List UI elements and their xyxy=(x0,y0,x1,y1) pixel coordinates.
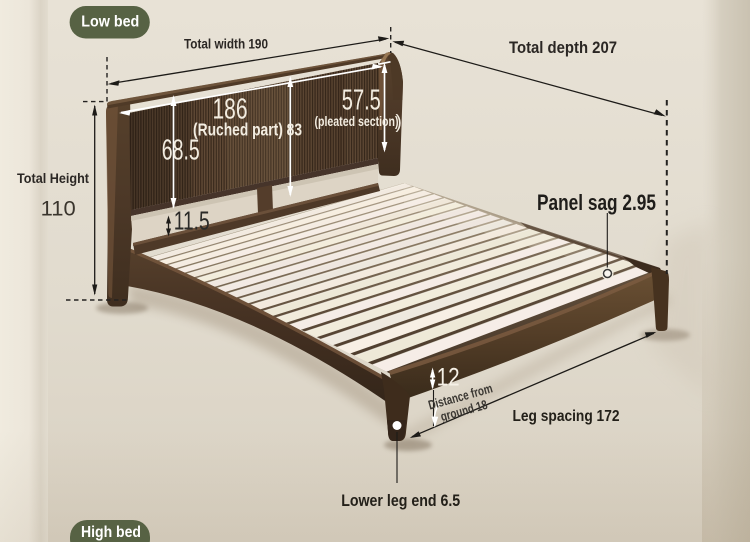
svg-text:): ) xyxy=(396,112,402,133)
svg-text:(pleated section): (pleated section) xyxy=(315,113,399,129)
svg-text:High bed: High bed xyxy=(81,524,141,541)
svg-text:Lower leg end 6.5: Lower leg end 6.5 xyxy=(341,491,460,510)
svg-text:57.5: 57.5 xyxy=(342,84,381,116)
svg-text:68.5: 68.5 xyxy=(162,135,200,167)
svg-text:(Ruched part) 83: (Ruched part) 83 xyxy=(193,120,302,140)
svg-text:12: 12 xyxy=(437,364,460,392)
svg-text:11.5: 11.5 xyxy=(174,206,210,236)
svg-text:Panel sag 2.95: Panel sag 2.95 xyxy=(537,190,656,215)
svg-text:Total width 190: Total width 190 xyxy=(184,35,268,51)
svg-text:Total depth 207: Total depth 207 xyxy=(509,39,617,57)
svg-text:110: 110 xyxy=(41,197,76,221)
svg-text:Low bed: Low bed xyxy=(81,14,139,31)
svg-text:Leg spacing 172: Leg spacing 172 xyxy=(513,408,620,425)
svg-text:Total Height: Total Height xyxy=(17,171,89,186)
